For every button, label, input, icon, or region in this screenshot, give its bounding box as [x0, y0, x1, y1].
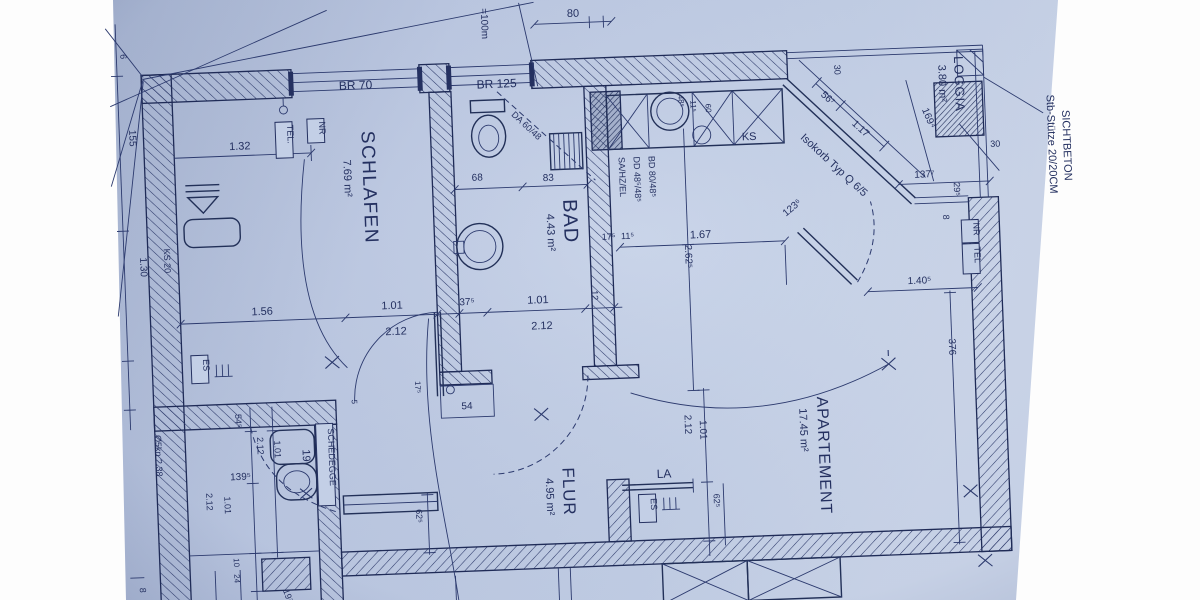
dim: 2.62⁵	[682, 244, 694, 268]
dim: 2.12	[385, 325, 407, 338]
label-nr-bedroom: NR	[317, 121, 328, 135]
label-nr-wall: NR	[971, 222, 982, 236]
room-label-flur: FLUR	[558, 467, 579, 516]
dim: 54	[461, 401, 473, 412]
dim: 376	[946, 338, 958, 356]
dim: 83	[543, 173, 555, 184]
room-area-flur: 4.95 m²	[543, 478, 556, 516]
dim: 62⁵	[414, 509, 425, 523]
label-tel-bedroom: TEL.	[285, 125, 296, 144]
dim: 139⁵	[230, 472, 251, 484]
dim: 2.12	[204, 493, 215, 511]
label-ks-fridge: KS	[742, 131, 757, 144]
dim: 155	[126, 130, 138, 148]
dim: 1.01	[222, 496, 233, 514]
dim: 2.12	[681, 415, 693, 435]
dim: 68	[471, 172, 483, 183]
dim: 1.01	[527, 294, 549, 307]
label-dd: DD 48⁵/48⁵	[632, 156, 644, 202]
room-area-apartement: 17.45 m²	[796, 408, 810, 452]
dim: 80	[567, 8, 580, 20]
room-area-schlafen: 7.69 m²	[340, 159, 353, 197]
label-es-bedroom: ES	[201, 359, 211, 371]
label-wc-19: 19	[300, 449, 312, 462]
dim: 37⁵	[459, 297, 475, 309]
dim: 10	[232, 558, 241, 568]
dim: 17⁵	[413, 381, 422, 394]
dim: 11⁵	[621, 231, 635, 242]
dim: 1.01	[381, 300, 403, 313]
label-es-flur: ES	[649, 498, 659, 510]
label-br125: BR 125	[476, 76, 517, 92]
dim: 1.32	[229, 140, 251, 153]
dim: 1.30	[137, 257, 149, 277]
dim: 11⁵	[688, 100, 697, 112]
label-ks20: KS 20	[162, 248, 173, 273]
label-la: LA	[656, 466, 671, 481]
room-label-schlafen: SCHLAFEN	[356, 130, 381, 244]
dim: Ø5kn 2.38	[153, 435, 165, 477]
dim: 6	[118, 54, 128, 59]
dim: 1.01	[272, 440, 283, 458]
dim: 60	[704, 104, 713, 114]
label-br70: BR 70	[339, 78, 373, 93]
dim: 30	[990, 139, 1000, 149]
dim: 62⁵	[712, 493, 723, 507]
dim: 24	[232, 574, 241, 584]
room-area-bad: 4.43 m²	[544, 214, 557, 252]
dim: 29⁵	[952, 182, 963, 196]
dim: 8	[941, 214, 951, 219]
dim: 1.67	[690, 229, 712, 242]
dim: 137⁷	[914, 169, 935, 181]
hatched-box	[262, 557, 311, 591]
dim: 8	[138, 588, 148, 593]
label-bd: BD 80/48⁵	[647, 156, 659, 198]
dim: 1.56	[251, 306, 273, 319]
dim: 48⁵	[676, 95, 685, 108]
dim: 2.12	[255, 437, 266, 455]
dim: 1.01	[697, 420, 709, 440]
room-label-loggia: LOGGIA	[951, 56, 968, 112]
label-scale: =100m	[478, 8, 490, 39]
dim: 30	[832, 65, 842, 75]
dim: 1.40⁵	[908, 275, 932, 287]
dim: 17⁵	[602, 231, 616, 242]
room-label-bad: BAD	[558, 199, 582, 244]
label-sa-hz-el: SA/HZ/EL	[617, 157, 629, 197]
dim: 2.12	[531, 320, 553, 333]
dim: 12	[590, 290, 600, 300]
blueprint-scan: SCHLAFEN 7.69 m² BAD 4.43 m² FLUR 4.95 m…	[0, 0, 1200, 600]
label-tel-wall: TEL	[972, 246, 983, 263]
room-area-loggia: 3.80 m²	[935, 64, 948, 102]
dim: 54⁵	[233, 414, 244, 428]
